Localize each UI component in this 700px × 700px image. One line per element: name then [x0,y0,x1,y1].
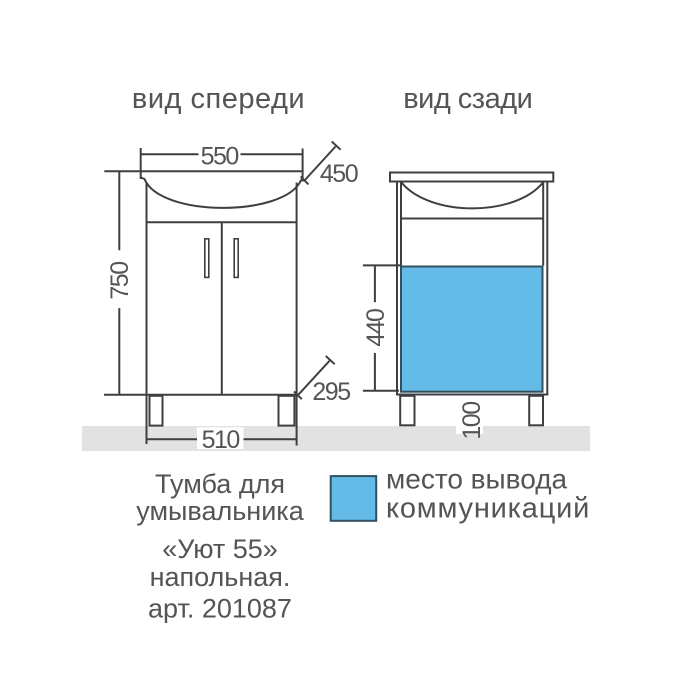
svg-text:умывальника: умывальника [136,496,304,526]
svg-text:вид сзади: вид сзади [403,83,532,115]
svg-text:арт. 201087: арт. 201087 [148,594,292,624]
svg-text:Тумба для: Тумба для [155,469,285,499]
svg-text:«Уют 55»: «Уют 55» [162,534,278,564]
svg-text:550: 550 [201,142,239,170]
svg-text:450: 450 [320,160,358,188]
svg-text:750: 750 [106,262,134,300]
svg-text:100: 100 [458,402,486,440]
svg-text:440: 440 [362,309,390,347]
svg-text:вид спереди: вид спереди [132,83,305,115]
svg-text:510: 510 [202,426,240,454]
svg-text:коммуникаций: коммуникаций [386,492,590,524]
svg-text:место вывода: место вывода [386,464,568,495]
svg-text:напольная.: напольная. [150,562,291,592]
svg-text:295: 295 [312,378,350,406]
